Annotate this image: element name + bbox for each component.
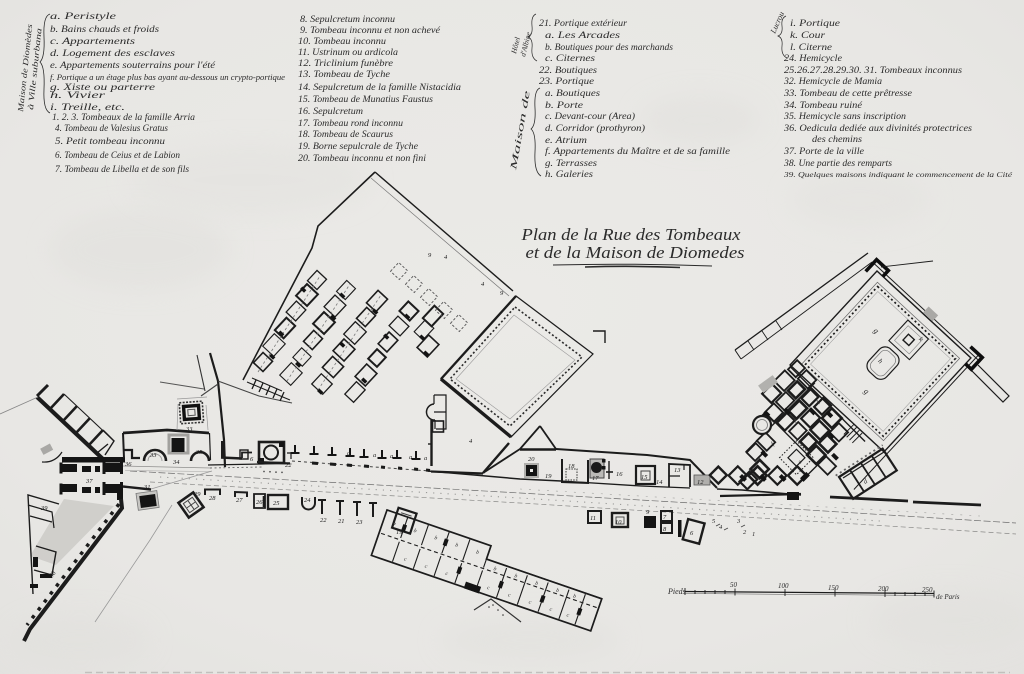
svg-text:c. Devant-cour (Area): c. Devant-cour (Area)	[545, 111, 635, 121]
svg-text:a: a	[373, 452, 376, 459]
svg-text:7. Tombeau de Libella et de so: 7. Tombeau de Libella et de son fils	[55, 164, 190, 174]
svg-text:c. Citernes: c. Citernes	[545, 53, 596, 63]
svg-text:20. Tombeau inconnu et non fin: 20. Tombeau inconnu et non fini	[298, 153, 427, 163]
svg-text:23: 23	[356, 519, 363, 526]
svg-text:22. Boutiques: 22. Boutiques	[539, 65, 598, 75]
svg-text:34: 34	[172, 459, 180, 466]
svg-text:1: 1	[752, 531, 755, 538]
svg-text:11. Ustrinum ou ardicola: 11. Ustrinum ou ardicola	[298, 47, 399, 57]
svg-text:34. Tombeau ruiné: 34. Tombeau ruiné	[783, 100, 863, 110]
svg-text:25: 25	[273, 500, 280, 507]
svg-text:25.26.27.28.29.30. 31. Tombeau: 25.26.27.28.29.30. 31. Tombeaux inconnus	[784, 65, 963, 75]
svg-text:a: a	[424, 455, 427, 462]
svg-text:150: 150	[828, 584, 839, 592]
svg-text:e. Atrium: e. Atrium	[545, 135, 588, 145]
svg-text:13: 13	[674, 467, 681, 474]
svg-text:h. Galeries: h. Galeries	[545, 169, 594, 179]
svg-text:13. Tombeau de Tyche: 13. Tombeau de Tyche	[298, 69, 390, 79]
svg-text:24. Hemicycle: 24. Hemicycle	[784, 53, 842, 63]
svg-text:33. Tombeau de cette prêtresse: 33. Tombeau de cette prêtresse	[783, 88, 912, 98]
svg-text:39: 39	[40, 505, 48, 512]
svg-text:23. Portique: 23. Portique	[539, 76, 594, 86]
svg-text:17: 17	[592, 475, 599, 482]
svg-text:36. Oedicula dediée aux divini: 36. Oedicula dediée aux divinités protec…	[783, 123, 973, 133]
svg-text:100: 100	[778, 582, 789, 590]
svg-text:32. Hemicycle de Mamia: 32. Hemicycle de Mamia	[783, 76, 883, 86]
svg-text:27: 27	[236, 497, 243, 504]
svg-text:Pieds: Pieds	[667, 587, 686, 596]
svg-text:16: 16	[616, 471, 623, 478]
svg-text:9. Tombeau inconnu et non ache: 9. Tombeau inconnu et non achevé	[300, 25, 441, 35]
svg-text:35: 35	[195, 449, 203, 456]
svg-text:38. Une partie des remparts: 38. Une partie des remparts	[783, 158, 893, 168]
svg-text:11: 11	[590, 515, 596, 522]
svg-text:12: 12	[697, 479, 704, 486]
svg-text:k. Cour: k. Cour	[790, 30, 826, 40]
svg-text:15: 15	[641, 474, 648, 481]
svg-text:c. Appartements: c. Appartements	[50, 36, 136, 46]
svg-text:18. Tombeau de Scaurus: 18. Tombeau de Scaurus	[298, 129, 394, 139]
svg-text:19. Borne sepulcrale de Tyche: 19. Borne sepulcrale de Tyche	[298, 141, 418, 151]
svg-text:a. Les Arcades: a. Les Arcades	[545, 30, 621, 40]
svg-text:39. Quelques maisons indiquant: 39. Quelques maisons indiquant le commen…	[783, 171, 1014, 179]
svg-text:b. Bains chauds et froids: b. Bains chauds et froids	[50, 24, 160, 34]
svg-text:b. Boutiques pour des marchand: b. Boutiques pour des marchands	[545, 42, 674, 52]
svg-text:37. Porte de la ville: 37. Porte de la ville	[783, 146, 864, 156]
svg-text:et de la Maison de Diomedes: et de la Maison de Diomedes	[526, 243, 745, 262]
svg-text:1. 2. 3. Tombeaux de la famill: 1. 2. 3. Tombeaux de la famille Arria	[52, 112, 196, 122]
svg-text:33: 33	[185, 426, 193, 433]
svg-text:22: 22	[320, 517, 327, 524]
svg-text:4. Tombeau de Valesius Gratus: 4. Tombeau de Valesius Gratus	[55, 123, 168, 133]
svg-text:f. Appartements du Maître et d: f. Appartements du Maître et de sa famil…	[545, 146, 730, 156]
svg-text:6. Tombeau de Ceius et de Labi: 6. Tombeau de Ceius et de Labion	[55, 150, 181, 160]
svg-text:l. Citerne: l. Citerne	[790, 42, 832, 52]
svg-text:a: a	[409, 454, 412, 461]
svg-text:5. Petit tombeau inconnu: 5. Petit tombeau inconnu	[55, 136, 166, 146]
svg-text:18: 18	[568, 463, 575, 470]
svg-text:15. Tombeau de Munatius Faustu: 15. Tombeau de Munatius Faustus	[298, 94, 434, 104]
svg-text:200: 200	[878, 585, 889, 593]
svg-text:i. Treille, etc.: i. Treille, etc.	[50, 102, 125, 112]
svg-text:Plan de la Rue des Tombeaux: Plan de la Rue des Tombeaux	[520, 225, 741, 244]
svg-text:29: 29	[194, 491, 201, 498]
svg-text:e. Appartements souterrains po: e. Appartements souterrains pour l'été	[50, 60, 216, 70]
svg-text:b. Porte: b. Porte	[545, 100, 583, 110]
svg-text:d. Logement des esclaves: d. Logement des esclaves	[50, 48, 176, 58]
svg-text:h. Vivier: h. Vivier	[50, 90, 106, 100]
svg-text:50: 50	[730, 581, 738, 589]
svg-text:17. Tombeau rond inconnu: 17. Tombeau rond inconnu	[298, 118, 404, 128]
svg-text:24: 24	[304, 497, 311, 504]
svg-text:i. Portique: i. Portique	[790, 18, 840, 28]
svg-text:21. Portique extérieur: 21. Portique extérieur	[539, 18, 628, 28]
svg-text:37: 37	[85, 478, 93, 485]
svg-text:a: a	[347, 450, 350, 457]
svg-text:a. Peristyle: a. Peristyle	[50, 11, 116, 21]
svg-text:de Paris: de Paris	[936, 593, 960, 601]
svg-text:20: 20	[528, 456, 535, 463]
svg-text:21: 21	[338, 518, 345, 525]
svg-text:28: 28	[209, 495, 216, 502]
svg-text:31: 31	[143, 484, 151, 491]
svg-text:35. Hemicycle sans inscription: 35. Hemicycle sans inscription	[783, 111, 907, 121]
svg-text:10: 10	[615, 519, 622, 526]
svg-text:14: 14	[656, 479, 663, 486]
svg-text:16. Sepulcretum: 16. Sepulcretum	[298, 106, 364, 116]
svg-text:g. Terrasses: g. Terrasses	[545, 158, 598, 168]
svg-text:d. Corridor (prothyron): d. Corridor (prothyron)	[545, 123, 645, 133]
svg-text:36: 36	[124, 461, 132, 468]
svg-text:19: 19	[545, 473, 552, 480]
svg-text:33: 33	[149, 452, 157, 459]
svg-text:14. Sepulcretum de la famille: 14. Sepulcretum de la famille Nistacidia	[298, 82, 462, 92]
svg-text:a. Boutiques: a. Boutiques	[545, 88, 601, 98]
svg-text:des chemins: des chemins	[812, 134, 863, 144]
svg-text:f. Portique a un étage plus ba: f. Portique a un étage plus bas ayant au…	[50, 73, 285, 82]
svg-text:a: a	[390, 453, 393, 460]
svg-text:8. Sepulcretum inconnu: 8. Sepulcretum inconnu	[300, 14, 396, 24]
svg-text:12. Triclinium funèbre: 12. Triclinium funèbre	[298, 58, 393, 68]
svg-text:10. Tombeau inconnu: 10. Tombeau inconnu	[298, 36, 387, 46]
svg-text:250: 250	[922, 586, 933, 594]
svg-text:26: 26	[256, 499, 263, 506]
